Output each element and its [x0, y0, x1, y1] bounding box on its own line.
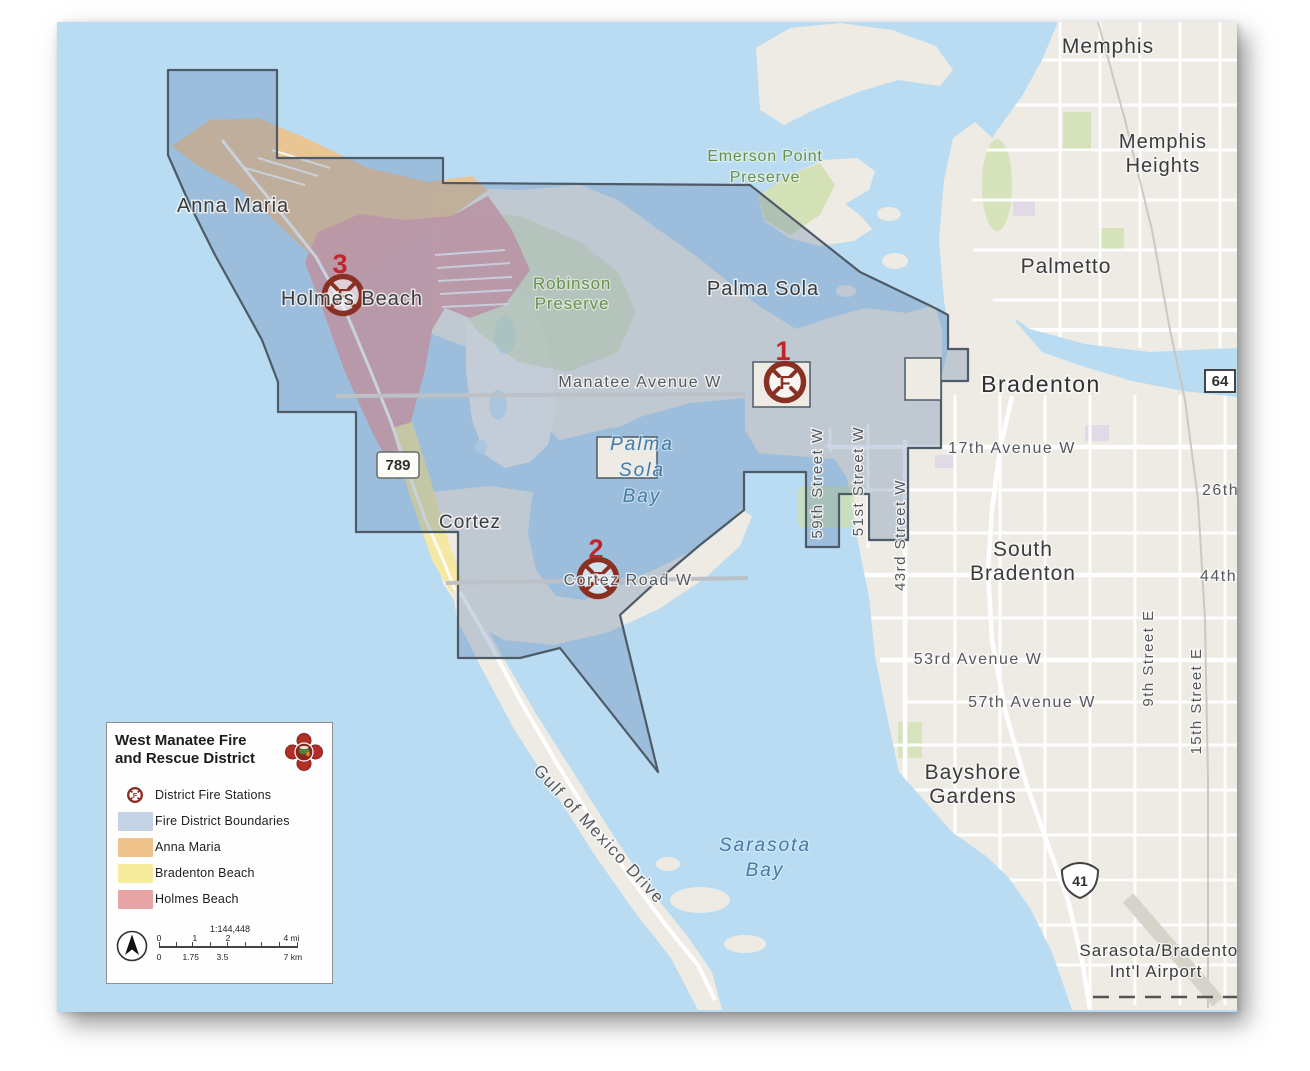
- scale-mi-0: 0: [157, 933, 162, 943]
- scale-bar: 1:144,448 0 1 2 4 mi 0 1.75 3.5 7 km: [155, 924, 305, 968]
- legend-item-bradenton-beach: Bradenton Beach: [115, 860, 324, 886]
- label-robinson-preserve-1: Robinson: [533, 274, 611, 293]
- label-53rd-avenue: 53rd Avenue W: [914, 651, 1043, 668]
- label-57th-avenue: 57th Avenue W: [968, 694, 1096, 711]
- label-palma-sola-bay-3: Bay: [623, 486, 662, 507]
- scale-km-35: 3.5: [217, 952, 229, 962]
- label-43rd-street: 43rd Street W: [892, 479, 909, 591]
- legend-header: West Manatee Fire and Rescue District: [115, 732, 324, 772]
- label-emerson-point-1: Emerson Point: [707, 148, 822, 165]
- station-3-number: 3: [332, 249, 347, 279]
- legend-title-line1: West Manatee Fire: [115, 732, 255, 750]
- label-9th-street: 9th Street E: [1140, 609, 1157, 706]
- legend-item-label: Holmes Beach: [155, 892, 239, 906]
- scanned-map-page: 789 64 41 F 1: [0, 0, 1310, 1071]
- route-shield-64: 64: [1205, 370, 1235, 392]
- label-bradenton: Bradenton: [981, 371, 1101, 397]
- label-cortez: Cortez: [439, 512, 501, 533]
- label-robinson-preserve-2: Preserve: [535, 294, 609, 313]
- scale-mi-1: 1: [193, 933, 198, 943]
- legend-item-label: District Fire Stations: [155, 788, 271, 802]
- scale-mi-4: 4 mi: [283, 933, 299, 943]
- label-emerson-point-2: Preserve: [730, 169, 800, 186]
- legend: West Manatee Fire and Rescue District: [106, 722, 333, 984]
- label-bayshore-gardens-1: Bayshore: [925, 761, 1022, 784]
- station-1-number: 1: [775, 336, 790, 366]
- legend-title: West Manatee Fire and Rescue District: [115, 732, 255, 768]
- label-airport-1: Sarasota/Bradenton: [1079, 941, 1237, 960]
- svg-text:F: F: [133, 793, 138, 800]
- label-15th-street: 15th Street E: [1188, 647, 1205, 754]
- label-44th: 44th: [1200, 568, 1237, 585]
- station-2-number: 2: [588, 534, 603, 564]
- legend-item-anna-maria: Anna Maria: [115, 834, 324, 860]
- label-anna-maria: Anna Maria: [177, 195, 289, 217]
- manatee-ave-causeway: [336, 394, 745, 396]
- scale-km-175: 1.75: [182, 952, 199, 962]
- label-26th: 26th: [1202, 482, 1237, 499]
- legend-item-holmes-beach: Holmes Beach: [115, 886, 324, 912]
- label-south-bradenton-2: Bradenton: [970, 562, 1076, 585]
- legend-item-district-boundaries: Fire District Boundaries: [115, 808, 324, 834]
- label-airport-2: Int'l Airport: [1110, 962, 1203, 981]
- label-sarasota-bay-1: Sarasota: [719, 835, 811, 856]
- label-51st-street: 51st Street W: [850, 426, 867, 536]
- anna-maria-swatch: [118, 838, 153, 857]
- north-arrow-icon: [115, 929, 149, 963]
- route-64-label: 64: [1212, 373, 1229, 390]
- legend-title-line2: and Rescue District: [115, 750, 255, 768]
- district-boundaries-swatch: [118, 812, 153, 831]
- legend-items: F District Fire Stations Fire District B…: [115, 782, 324, 912]
- label-manatee-avenue: Manatee Avenue W: [558, 374, 721, 391]
- scale-bar-block: 1:144,448 0 1 2 4 mi 0 1.75 3.5 7 km: [115, 924, 324, 968]
- fire-station-legend-icon: F: [115, 786, 155, 804]
- scale-bar-line: 0 1 2 4 mi 0 1.75 3.5 7 km: [159, 946, 297, 948]
- label-memphis-heights-2: Heights: [1126, 155, 1201, 177]
- label-south-bradenton-1: South: [993, 538, 1053, 561]
- label-memphis: Memphis: [1062, 35, 1154, 58]
- label-59th-street: 59th Street W: [809, 427, 826, 538]
- label-cortez-road: Cortez Road W: [564, 572, 693, 589]
- label-palma-sola: Palma Sola: [707, 278, 819, 300]
- label-palma-sola-bay-1: Palma: [610, 434, 674, 455]
- label-sarasota-bay-2: Bay: [746, 860, 785, 881]
- label-bayshore-gardens-2: Gardens: [929, 785, 1017, 808]
- route-41-label: 41: [1072, 873, 1088, 889]
- route-789-label: 789: [385, 457, 410, 474]
- label-holmes-beach: Holmes Beach: [281, 288, 423, 310]
- label-palmetto: Palmetto: [1021, 255, 1112, 278]
- label-17th-avenue: 17th Avenue W: [948, 440, 1076, 457]
- legend-item-fire-stations: F District Fire Stations: [115, 782, 324, 808]
- station-1-letter: F: [780, 373, 791, 393]
- legend-item-label: Anna Maria: [155, 840, 221, 854]
- legend-item-label: Bradenton Beach: [155, 866, 255, 880]
- scale-mi-2: 2: [226, 933, 231, 943]
- legend-item-label: Fire District Boundaries: [155, 814, 290, 828]
- holmes-beach-swatch: [118, 890, 153, 909]
- fire-department-emblem-icon: [284, 732, 324, 772]
- label-memphis-heights-1: Memphis: [1119, 131, 1207, 153]
- label-palma-sola-bay-2: Sola: [619, 460, 665, 481]
- scale-km-7: 7 km: [284, 952, 302, 962]
- bradenton-beach-swatch: [118, 864, 153, 883]
- scale-km-0: 0: [157, 952, 162, 962]
- route-shield-789: 789: [377, 452, 419, 478]
